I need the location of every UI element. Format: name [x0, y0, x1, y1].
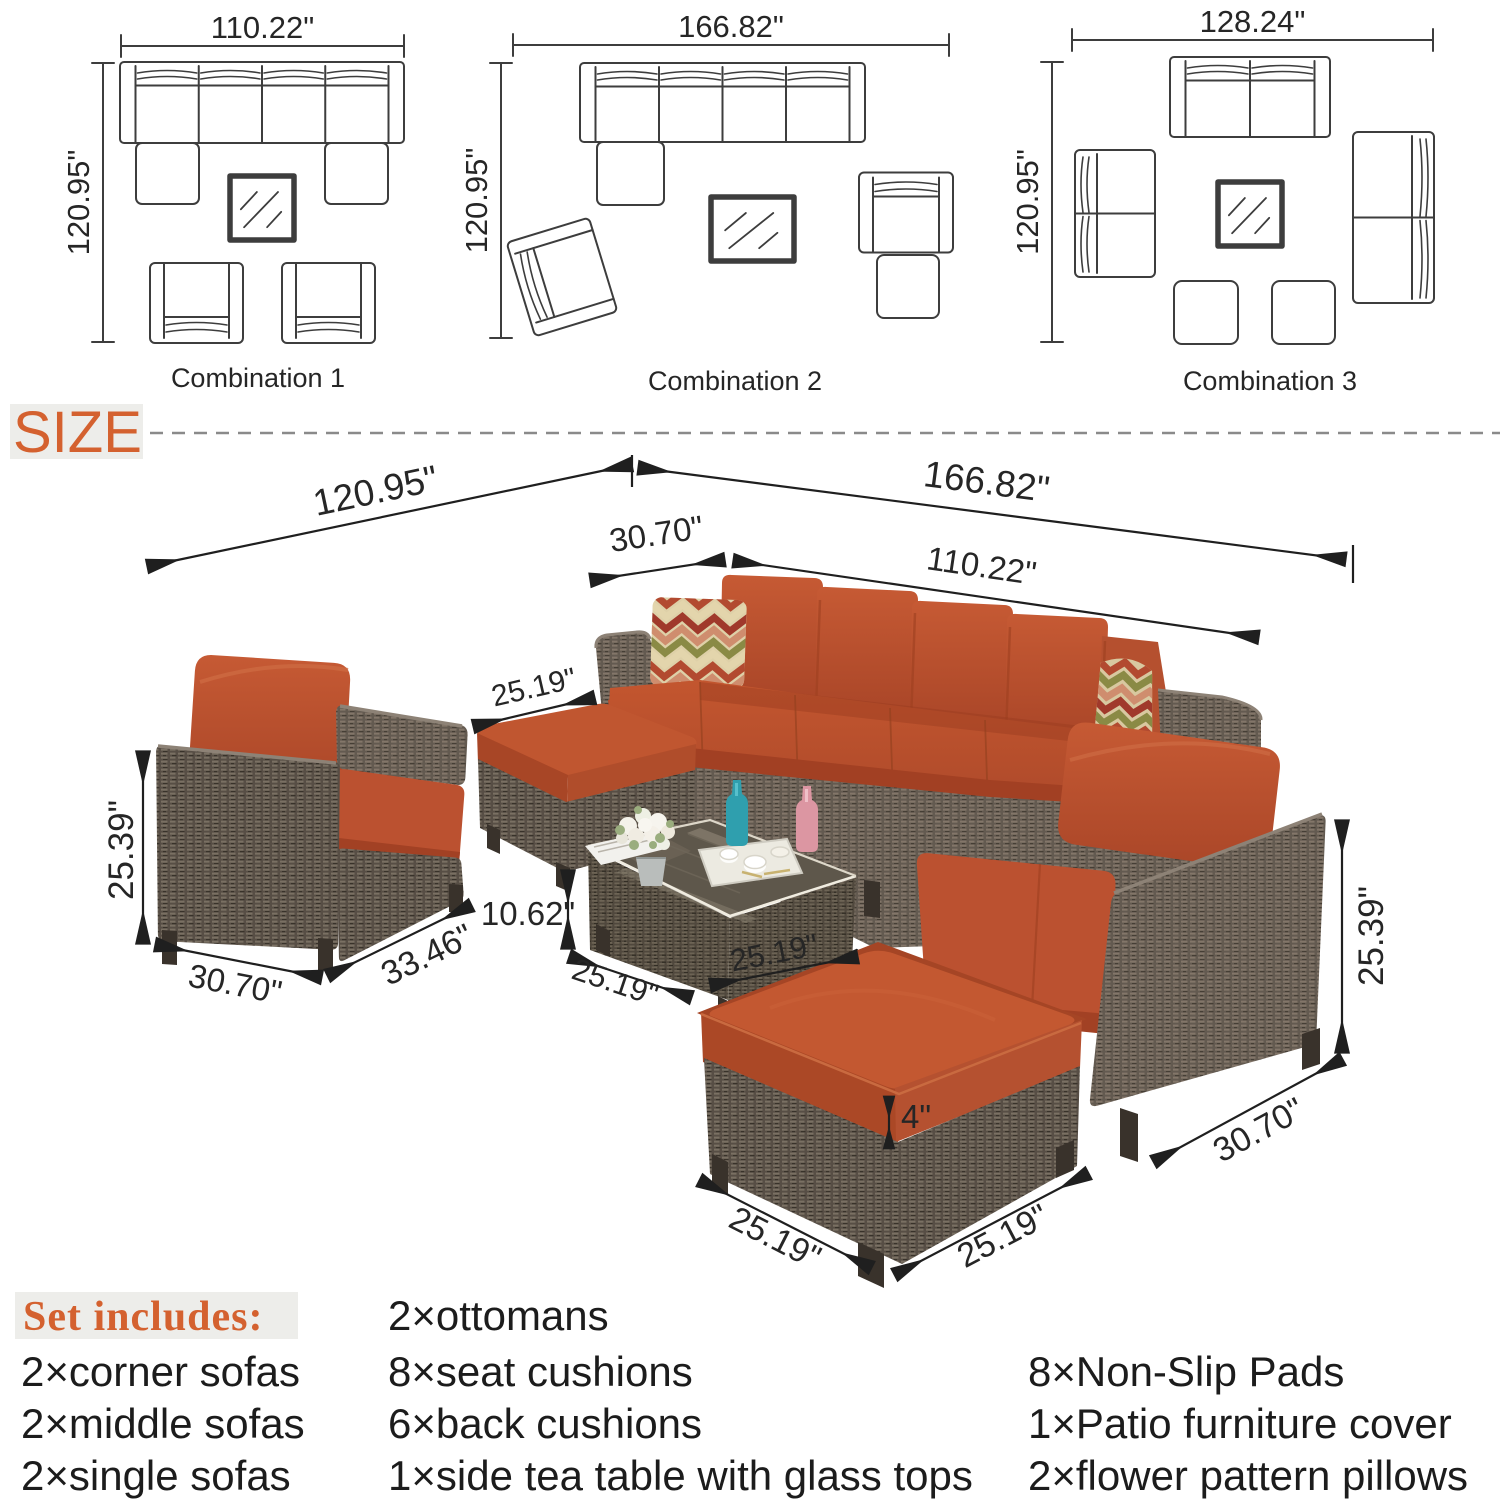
svg-text:110.22": 110.22" [924, 539, 1038, 592]
svg-text:120.95": 120.95" [61, 150, 96, 256]
svg-text:1×Patio furniture cover: 1×Patio furniture cover [1028, 1400, 1452, 1447]
svg-text:30.70": 30.70" [607, 508, 706, 559]
svg-text:2×middle sofas: 2×middle sofas [21, 1400, 305, 1447]
svg-text:10.62": 10.62" [481, 895, 575, 932]
svg-text:1×side tea table with glass to: 1×side tea table with glass tops [388, 1452, 973, 1499]
svg-text:30.70": 30.70" [185, 957, 285, 1011]
svg-text:Combination 2: Combination 2 [648, 366, 822, 396]
svg-text:166.82": 166.82" [678, 9, 784, 44]
svg-text:2×single sofas: 2×single sofas [21, 1452, 291, 1499]
svg-text:8×Non-Slip Pads: 8×Non-Slip Pads [1028, 1348, 1344, 1395]
svg-text:120.95": 120.95" [459, 148, 494, 254]
svg-text:6×back cushions: 6×back cushions [388, 1400, 702, 1447]
svg-text:25.19": 25.19" [488, 662, 579, 713]
svg-text:25.39": 25.39" [102, 800, 141, 900]
svg-text:SIZE: SIZE [13, 400, 142, 465]
svg-text:120.95": 120.95" [309, 458, 441, 524]
svg-text:Set includes:: Set includes: [23, 1294, 264, 1340]
svg-text:25.39": 25.39" [1352, 886, 1391, 986]
svg-text:2×flower pattern pillows: 2×flower pattern pillows [1028, 1452, 1468, 1499]
svg-text:Combination 1: Combination 1 [171, 363, 345, 393]
svg-text:166.82": 166.82" [921, 453, 1052, 510]
svg-text:2×ottomans: 2×ottomans [388, 1292, 609, 1339]
svg-text:30.70": 30.70" [1207, 1090, 1311, 1170]
svg-text:4": 4" [901, 1098, 931, 1135]
svg-text:2×corner sofas: 2×corner sofas [21, 1348, 300, 1395]
svg-text:8×seat cushions: 8×seat cushions [388, 1348, 693, 1395]
svg-text:120.95": 120.95" [1010, 149, 1045, 255]
svg-text:128.24": 128.24" [1200, 4, 1306, 39]
svg-text:110.22": 110.22" [211, 10, 315, 45]
svg-text:Combination 3: Combination 3 [1183, 366, 1357, 396]
